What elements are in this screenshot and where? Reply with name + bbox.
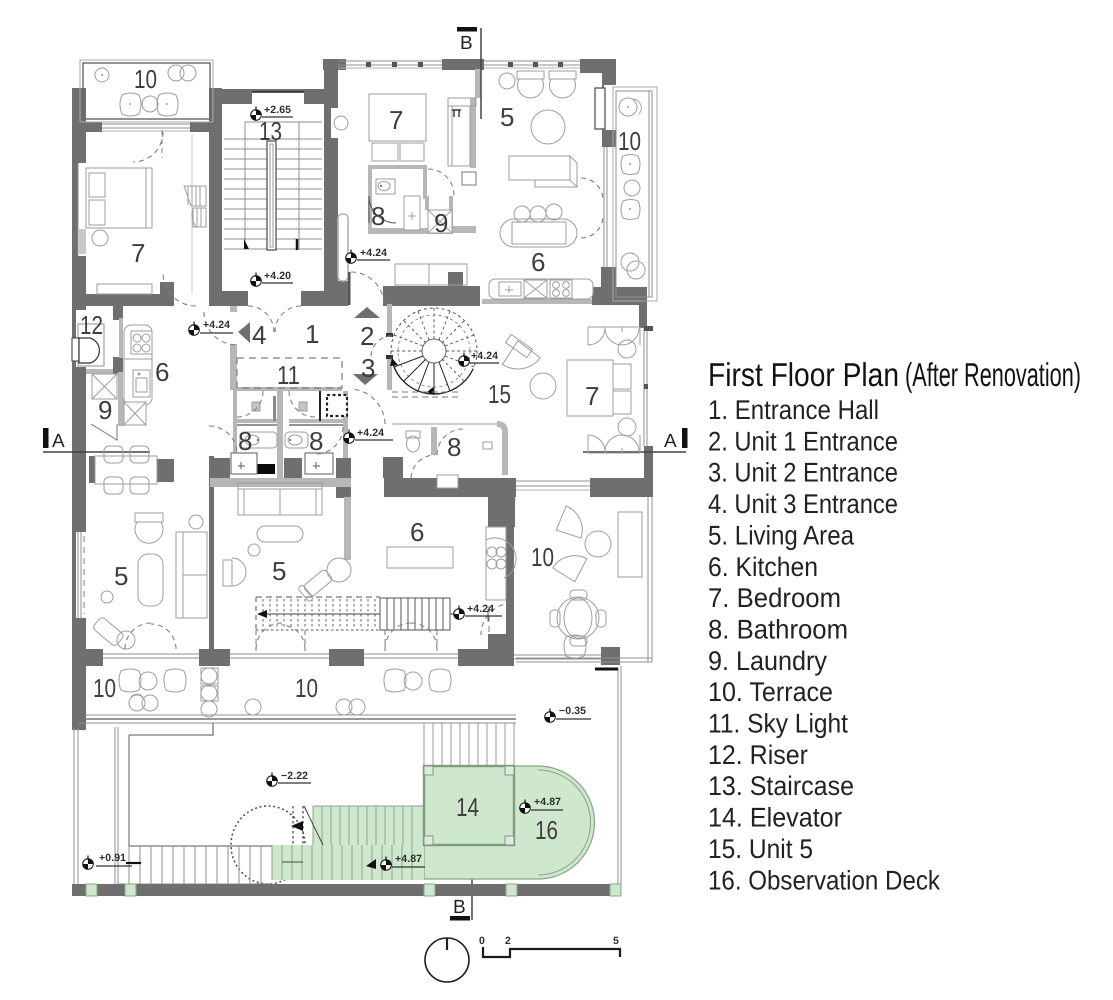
svg-text:A: A	[664, 431, 677, 452]
svg-text:+4.87: +4.87	[534, 796, 561, 808]
svg-text:13. Staircase: 13. Staircase	[708, 771, 854, 801]
svg-text:9: 9	[434, 208, 448, 238]
svg-text:12: 12	[80, 310, 103, 340]
svg-text:B: B	[460, 33, 473, 54]
svg-text:5: 5	[613, 935, 619, 947]
svg-text:0: 0	[479, 935, 485, 947]
svg-text:8. Bathroom: 8. Bathroom	[708, 615, 848, 645]
svg-text:+4.87: +4.87	[395, 853, 422, 865]
svg-text:16: 16	[535, 815, 558, 845]
svg-text:+0.91: +0.91	[99, 852, 126, 864]
svg-text:7: 7	[131, 238, 145, 268]
svg-text:A: A	[52, 431, 65, 452]
svg-text:+4.20: +4.20	[264, 270, 291, 282]
svg-text:13: 13	[259, 116, 282, 146]
svg-text:9. Laundry: 9. Laundry	[708, 646, 827, 676]
svg-text:16. Observation Deck: 16. Observation Deck	[708, 865, 940, 895]
svg-text:8: 8	[371, 201, 385, 231]
svg-text:1. Entrance Hall: 1. Entrance Hall	[708, 395, 879, 425]
svg-text:5: 5	[500, 102, 514, 132]
svg-text:2: 2	[505, 935, 511, 947]
svg-text:8: 8	[309, 426, 323, 456]
svg-text:+4.24: +4.24	[471, 350, 498, 362]
svg-text:1: 1	[305, 319, 319, 349]
svg-text:14: 14	[456, 792, 479, 822]
svg-text:15: 15	[488, 379, 511, 409]
svg-text:4. Unit 3 Entrance: 4. Unit 3 Entrance	[708, 489, 898, 519]
svg-text:10: 10	[93, 673, 116, 703]
svg-text:11: 11	[277, 360, 300, 390]
svg-text:5: 5	[272, 556, 286, 586]
svg-text:2: 2	[360, 321, 374, 351]
svg-text:+4.24: +4.24	[357, 427, 384, 439]
svg-text:12. Riser: 12. Riser	[708, 740, 808, 770]
svg-text:6: 6	[531, 247, 545, 277]
svg-text:(After Renovation): (After Renovation)	[905, 356, 1081, 393]
svg-text:−2.22: −2.22	[281, 770, 308, 782]
svg-text:10: 10	[531, 542, 554, 572]
svg-text:10. Terrace: 10. Terrace	[708, 677, 833, 707]
svg-text:+4.24: +4.24	[467, 603, 494, 615]
svg-text:10: 10	[295, 673, 318, 703]
svg-text:11. Sky Light: 11. Sky Light	[708, 709, 848, 739]
svg-text:8: 8	[238, 426, 252, 456]
svg-text:7: 7	[389, 105, 403, 135]
svg-text:B: B	[453, 897, 466, 918]
svg-text:15. Unit 5: 15. Unit 5	[708, 834, 813, 864]
svg-text:First Floor Plan: First Floor Plan	[708, 356, 899, 393]
svg-text:6. Kitchen: 6. Kitchen	[708, 552, 818, 582]
svg-text:14. Elevator: 14. Elevator	[708, 803, 842, 833]
svg-text:3. Unit 2 Entrance: 3. Unit 2 Entrance	[708, 458, 898, 488]
svg-text:3: 3	[361, 353, 375, 383]
svg-text:7. Bedroom: 7. Bedroom	[708, 583, 841, 613]
svg-text:8: 8	[447, 432, 461, 462]
svg-text:−0.35: −0.35	[559, 705, 586, 717]
svg-text:+4.24: +4.24	[203, 319, 230, 331]
svg-text:6: 6	[155, 357, 169, 387]
svg-text:2. Unit 1 Entrance: 2. Unit 1 Entrance	[708, 426, 898, 456]
svg-text:5: 5	[114, 561, 128, 591]
svg-text:10: 10	[134, 64, 157, 94]
svg-text:7: 7	[585, 381, 599, 411]
svg-text:10: 10	[618, 126, 641, 156]
svg-text:+4.24: +4.24	[360, 247, 387, 259]
svg-text:5. Living Area: 5. Living Area	[708, 520, 855, 550]
svg-text:6: 6	[410, 517, 424, 547]
svg-text:4: 4	[252, 320, 266, 350]
svg-text:+2.65: +2.65	[264, 104, 291, 116]
svg-text:9: 9	[98, 395, 112, 425]
